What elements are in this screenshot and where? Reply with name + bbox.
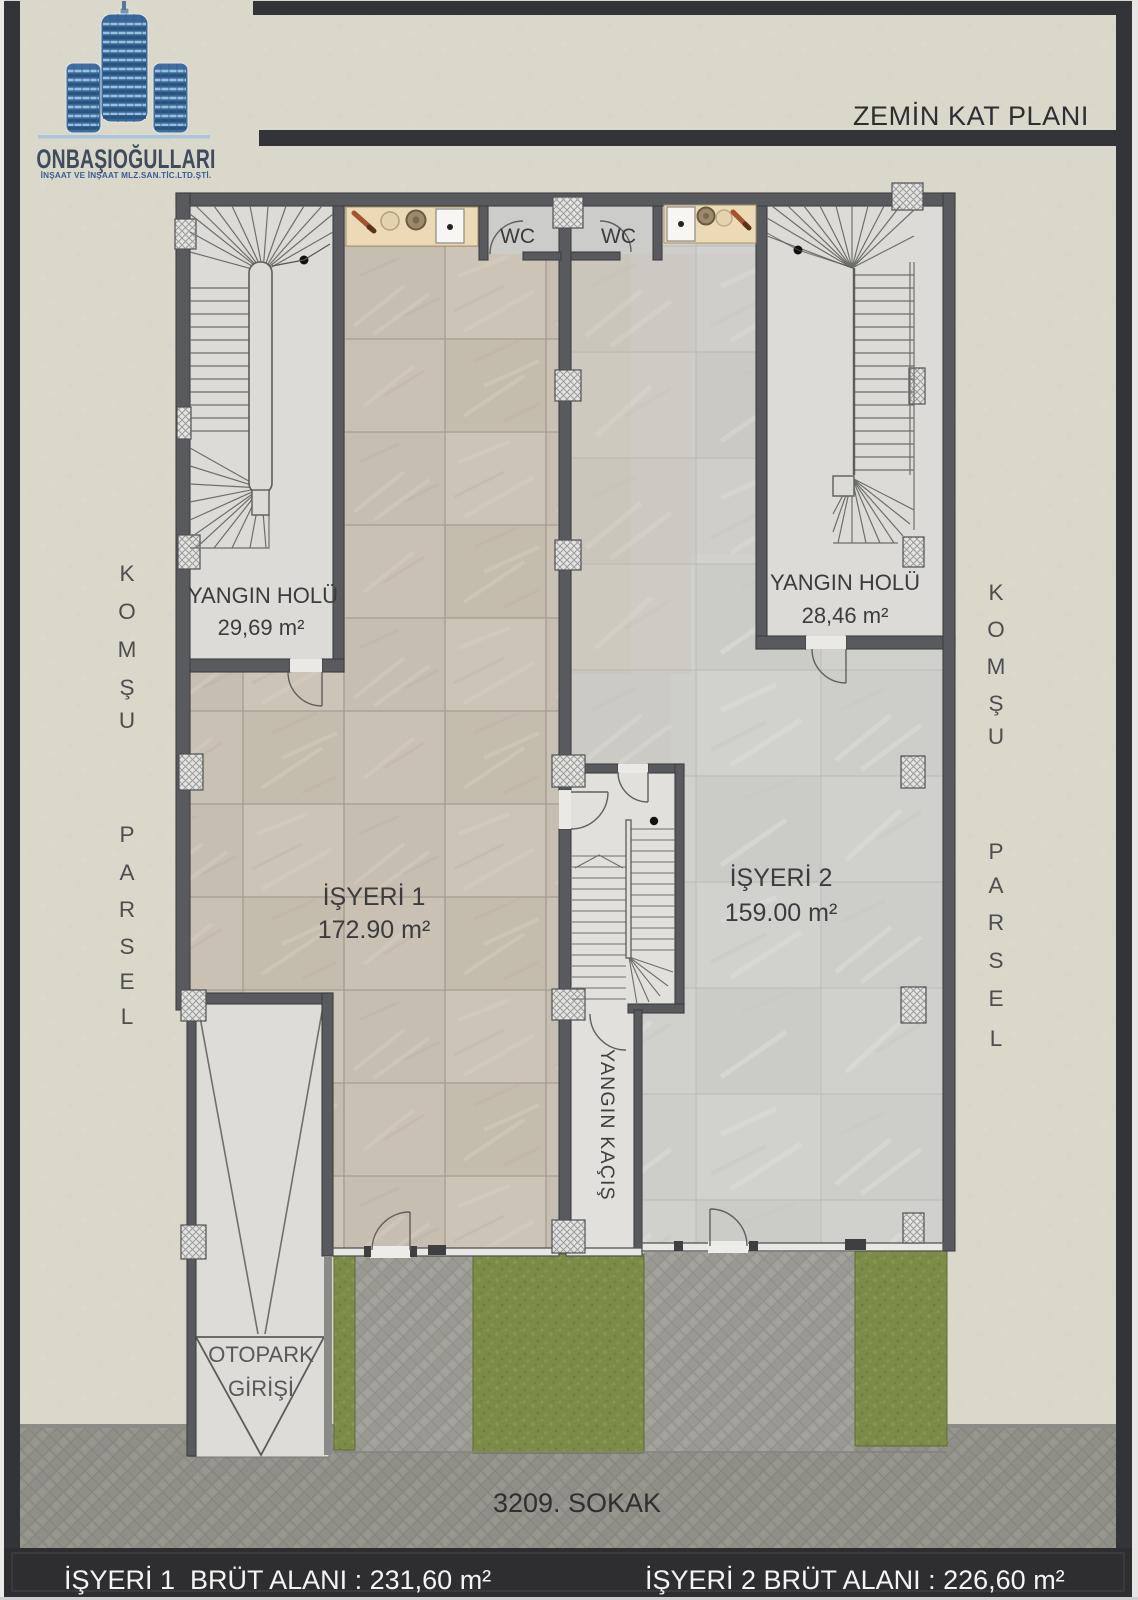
svg-text:İNŞAAT VE İNŞAAT MLZ.SAN.TİC.L: İNŞAAT VE İNŞAAT MLZ.SAN.TİC.LTD.ŞTİ. (41, 170, 212, 180)
svg-text:U: U (119, 708, 135, 733)
svg-text:Ş: Ş (988, 691, 1003, 716)
svg-text:A: A (988, 873, 1003, 898)
svg-text:O: O (118, 599, 136, 624)
svg-text:E: E (988, 986, 1003, 1011)
svg-text:28,46 m²: 28,46 m² (802, 603, 889, 628)
svg-text:K: K (988, 580, 1003, 605)
svg-text:E: E (119, 969, 134, 994)
svg-text:172.90 m²: 172.90 m² (318, 916, 431, 944)
svg-text:3209. SOKAK: 3209. SOKAK (493, 1488, 661, 1518)
svg-text:K: K (119, 561, 134, 586)
svg-text:R: R (119, 897, 135, 922)
svg-text:L: L (990, 1026, 1003, 1051)
svg-text:WC: WC (500, 225, 535, 248)
svg-text:P: P (119, 822, 134, 847)
svg-text:YANGIN HOLÜ: YANGIN HOLÜ (770, 570, 920, 595)
svg-text:S: S (119, 934, 134, 959)
svg-text:S: S (988, 948, 1003, 973)
svg-text:Ş: Ş (119, 675, 134, 700)
svg-text:İŞYERİ 2: İŞYERİ 2 (730, 863, 833, 892)
svg-text:29,69 m²: 29,69 m² (218, 615, 305, 640)
svg-text:WC: WC (601, 225, 636, 248)
svg-text:159.00 m²: 159.00 m² (725, 899, 838, 927)
svg-text:YANGIN KAÇIŞ: YANGIN KAÇIŞ (596, 1049, 618, 1201)
svg-text:İŞYERİ 2 BRÜT ALANI : 226,60 m: İŞYERİ 2 BRÜT ALANI : 226,60 m² (645, 1564, 1065, 1595)
svg-text:R: R (988, 910, 1004, 935)
svg-text:U: U (988, 724, 1004, 749)
svg-text:GİRİŞİ: GİRİŞİ (228, 1376, 294, 1401)
svg-text:L: L (121, 1004, 134, 1029)
svg-text:A: A (119, 860, 134, 885)
svg-text:O: O (987, 617, 1005, 642)
svg-text:OTOPARK: OTOPARK (208, 1342, 314, 1367)
svg-text:M: M (118, 637, 137, 662)
svg-text:İŞYERİ 1: İŞYERİ 1 (323, 882, 426, 911)
svg-text:M: M (987, 654, 1006, 679)
svg-text:ZEMİN KAT PLANI: ZEMİN KAT PLANI (853, 100, 1089, 131)
svg-text:P: P (988, 839, 1003, 864)
svg-text:İŞYERİ 1 BRÜT ALANI : 231,60: İŞYERİ 1 BRÜT ALANI : 231,60 m² (64, 1564, 491, 1595)
svg-text:YANGIN HOLÜ: YANGIN HOLÜ (188, 583, 338, 608)
